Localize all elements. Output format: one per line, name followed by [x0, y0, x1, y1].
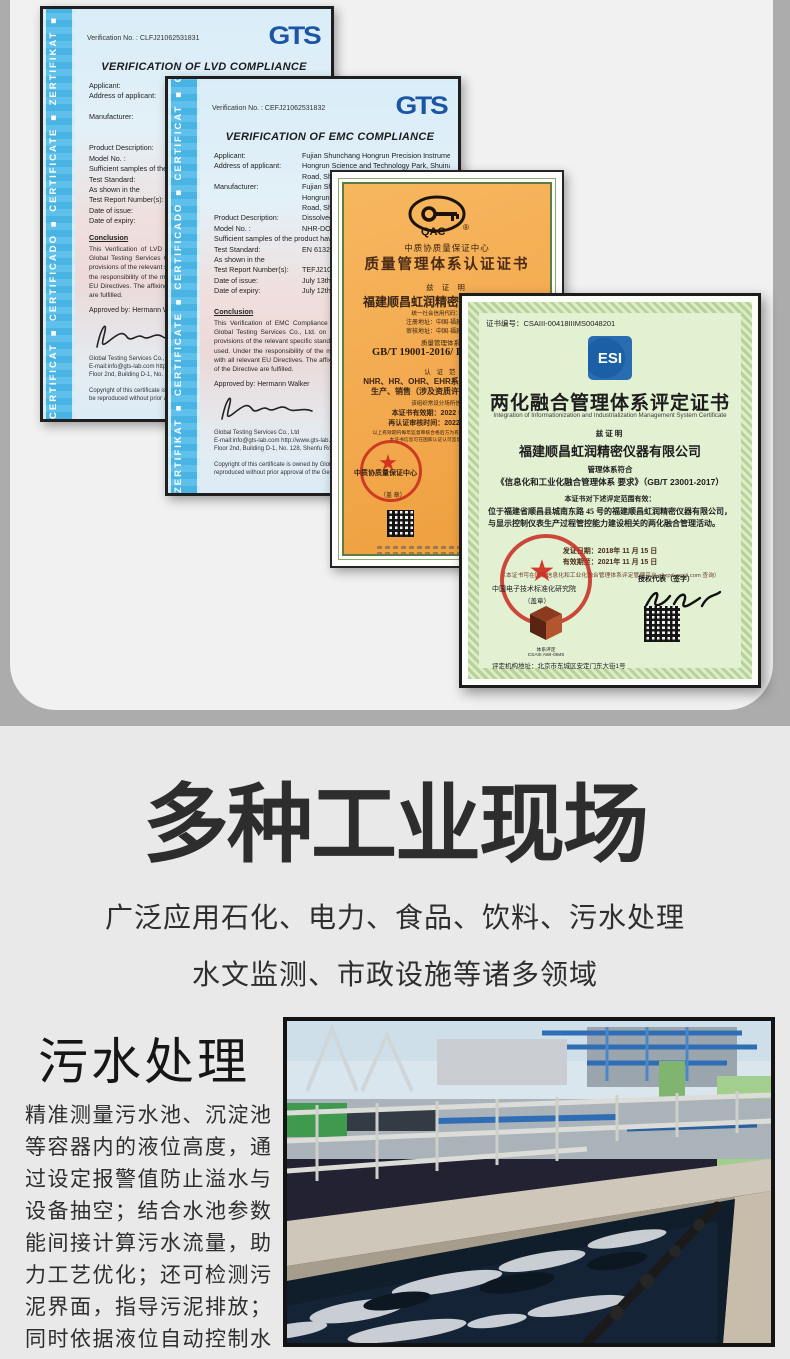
gts-logo: GTS — [268, 23, 319, 49]
cert-field-label: Applicant: — [214, 151, 302, 161]
cert-field-label: Date of expiry: — [214, 286, 302, 296]
cert-field-label: Test Report Number(s): — [214, 265, 302, 275]
qac-certify: 兹 证 明 — [332, 282, 562, 293]
cert-field-label: Applicant: — [89, 81, 177, 91]
gts-logo: GTS — [395, 93, 446, 119]
cert-field-label — [214, 193, 302, 203]
cert-field-label: Product Description: — [89, 143, 177, 153]
wastewater-plant-photo — [283, 1017, 775, 1347]
approved-by: Approved by: Hermann Walker — [214, 381, 309, 388]
cert-field-value: Fujian Shunchang Hongrun Precision Instr… — [302, 151, 450, 161]
cert-field-label: Sufficient samples of the product have b… — [214, 234, 332, 244]
cert-field-label: Date of issue: — [89, 206, 177, 216]
cert-field-label: Date of expiry: — [89, 216, 177, 226]
esi-cube-label: 体系评定 CSAIII AWI-0IMS — [520, 646, 572, 658]
esi-system-line: 管理体系符合 — [462, 464, 758, 475]
esi-company: 福建顺昌虹润精密仪器有限公司 — [462, 441, 758, 460]
esi-title: 两化融合管理体系评定证书 — [462, 388, 758, 415]
cert-field-label: Test Standard: — [214, 245, 302, 255]
certificate-title: VERIFICATION OF LVD COMPLIANCE — [87, 61, 321, 73]
esi-stamp-org: 中国电子技术标准化研究院 — [492, 584, 576, 594]
cert-field-label — [214, 172, 302, 182]
esi-sign-label: 授权代表（签字） — [638, 574, 694, 584]
industry-subtitle-2: 水文监测、市政设施等诸多领域 — [0, 953, 790, 993]
qac-issuer: 中质协质量保证中心 — [354, 468, 417, 478]
esi-subtitle: Integration of Informationization and In… — [462, 412, 758, 419]
verification-number: Verification No. : CLFJ21062531831 — [87, 35, 199, 42]
certificate-title: VERIFICATION OF EMC COMPLIANCE — [212, 131, 448, 143]
wastewater-plant-photo-art — [287, 1021, 771, 1343]
cert-field-label: Address of applicant: — [89, 91, 177, 101]
cert-field-label: Product Description: — [214, 213, 302, 223]
esi-footer: 评定机构地址：北京市东城区安定门东大街1号 — [492, 660, 626, 670]
certificate-header: Verification No. : CLFJ21062531831 GTS — [87, 23, 319, 49]
cert-field-label: Date of issue: — [214, 276, 302, 286]
certificate-esi: 证书编号：CSAIII-00418IIIMS0048201 ESI 两化融合管理… — [459, 293, 761, 688]
cert-field-label: Test Report Number(s): — [89, 195, 177, 205]
sewage-paragraph: 精准测量污水池、沉淀池等容器内的液位高度，通过设定报警值防止溢水与设备抽空；结合… — [25, 1100, 271, 1359]
svg-text:®: ® — [463, 223, 469, 232]
certificate-side-text: CERTIFICAT ■ CERTIFICADO ■ CERTIFICATE ■… — [41, 9, 67, 419]
esi-logo-icon: ESI — [588, 336, 632, 380]
esi-cube-code-text: CSAIII AWI-0IMS — [528, 653, 565, 658]
cert-field-label: Model No. : — [214, 224, 302, 234]
cert-field-label — [89, 102, 177, 112]
cert-field-label: Test Standard: — [89, 175, 177, 185]
sewage-title: 污水处理 — [38, 1022, 250, 1094]
conclusion-label: Conclusion — [214, 307, 253, 316]
qac-qr-code-icon — [387, 510, 414, 537]
page: CERTIFICAT ■ CERTIFICADO ■ CERTIFICATE ■… — [0, 0, 790, 1359]
qac-seal-label: （盖 章） — [380, 490, 406, 499]
industry-title: 多种工业现场 — [0, 782, 790, 868]
esi-scope-intro: 本证书对下述评定范围有效： — [462, 494, 758, 504]
cert-field-label — [214, 203, 302, 213]
certificate-side-text: ZERTIFIKAT ■ CERTIFICATE ■ CERTIFICADO ■… — [166, 79, 192, 493]
cert-field-label: As shown in the — [214, 255, 302, 265]
cert-field-row: Applicant:Fujian Shunchang Hongrun Preci… — [214, 151, 450, 161]
esi-logo-text: ESI — [598, 350, 622, 367]
cert-field-label: Manufacturer: — [214, 182, 302, 192]
esi-cert-no: 证书编号：CSAIII-00418IIIMS0048201 — [486, 318, 615, 329]
cert-field-label: As shown in the — [89, 185, 177, 195]
cert-field-label — [89, 123, 177, 133]
esi-scope: 位于福建省顺昌县城南东路 45 号的福建顺昌虹润精密仪器有限公司，与显示控制仪表… — [488, 506, 732, 530]
certificate-header: Verification No. : CEFJ21062531832 GTS — [212, 93, 446, 119]
signature-icon — [214, 389, 324, 423]
cert-field-label: Manufacturer: — [89, 112, 177, 122]
verification-number: Verification No. : CEFJ21062531832 — [212, 105, 325, 112]
qac-title: 质量管理体系认证证书 — [332, 253, 562, 274]
industry-subtitle-1: 广泛应用石化、电力、食品、饮料、污水处理 — [0, 896, 790, 936]
conclusion-label: Conclusion — [89, 233, 128, 242]
industry-section: 多种工业现场 广泛应用石化、电力、食品、饮料、污水处理 水文监测、市政设施等诸多… — [0, 726, 790, 993]
cert-field-label — [89, 133, 177, 143]
esi-standard: 《信息化和工业化融合管理体系 要求》（GB/T 23001-2017） — [462, 476, 758, 488]
qac-key-logo-icon: QAC ® — [407, 194, 473, 238]
cert-field-label: Model No. : — [89, 154, 177, 164]
cert-field-label: Address of applicant: — [214, 161, 302, 171]
esi-certify: 兹证明 — [462, 428, 758, 439]
esi-qr-code-icon — [644, 606, 680, 642]
esi-cube-logo-icon — [524, 602, 568, 646]
svg-text:QAC: QAC — [421, 226, 446, 238]
